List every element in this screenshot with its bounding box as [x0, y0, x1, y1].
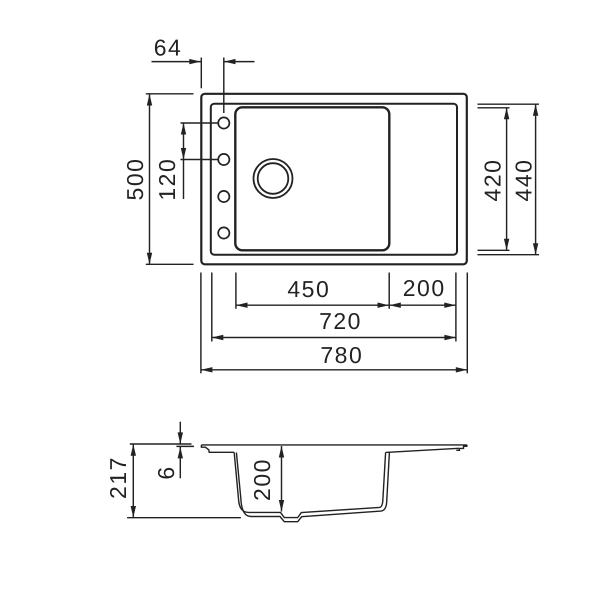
svg-text:217: 217	[105, 456, 131, 499]
svg-text:720: 720	[319, 308, 362, 334]
svg-text:64: 64	[154, 34, 183, 60]
svg-text:420: 420	[479, 159, 505, 202]
svg-text:780: 780	[320, 342, 363, 368]
svg-text:440: 440	[511, 159, 537, 202]
svg-text:120: 120	[154, 158, 180, 201]
svg-text:200: 200	[249, 458, 275, 501]
svg-text:500: 500	[122, 158, 148, 201]
svg-text:200: 200	[403, 275, 446, 301]
svg-text:6: 6	[153, 465, 179, 479]
svg-text:450: 450	[287, 276, 330, 302]
